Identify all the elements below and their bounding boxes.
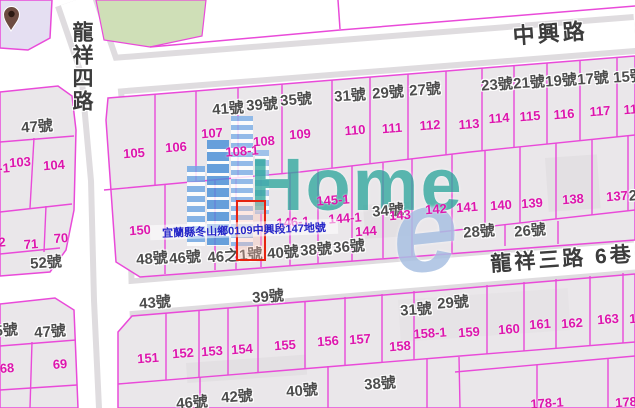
parcel-number-label: 138 (562, 192, 585, 206)
parcel-number-label: 112 (419, 118, 441, 132)
parcel-number-label: 104 (43, 158, 66, 172)
house-number-label: 43號 (139, 294, 172, 311)
parcel-number-label: 107 (201, 126, 224, 140)
watermark-e-swoosh: e (386, 169, 464, 293)
house-number-label: 38號 (300, 241, 333, 258)
parcel-number-label: 71 (23, 237, 38, 251)
parcel-number-label: 163 (597, 312, 620, 326)
road-label-longxiang-4: 龍祥四路 (66, 21, 96, 113)
house-number-label: 27號 (409, 81, 442, 98)
house-number-label: 39號 (246, 96, 279, 113)
parcel-number-label: 110 (344, 123, 366, 137)
parcel-number-label: 141 (456, 200, 479, 214)
parcel-number-label: 155 (274, 338, 297, 352)
house-number-label: 38號 (364, 375, 397, 392)
location-pin-icon[interactable] (0, 0, 24, 34)
parcel-number-label: 108 (253, 134, 276, 148)
house-number-label: 46號 (169, 249, 202, 266)
house-number-label: 46號 (176, 394, 209, 408)
house-number-label: 15號 (613, 68, 635, 85)
house-number-label: 31號 (334, 87, 367, 104)
house-number-label: 2 (628, 188, 635, 204)
parcel-number-label: 159 (458, 325, 481, 339)
parcel-number-label: 178-1 (530, 395, 564, 408)
house-number-label: 45號 (0, 322, 18, 339)
parcel-number-label: 113 (458, 117, 480, 131)
parcel-number-label: 68 (0, 361, 15, 375)
house-number-label: 21號 (513, 74, 546, 91)
parcel-number-label: 115 (519, 109, 541, 123)
house-number-label: 40號 (286, 382, 319, 399)
house-number-label: 36號 (333, 238, 366, 255)
house-number-label: 39號 (252, 288, 285, 305)
parcel-number-label: -1 (0, 161, 10, 175)
parcel-number-label: 160 (498, 322, 521, 336)
parcel-number-label: 137 (606, 189, 629, 203)
house-number-label: 47號 (34, 323, 67, 340)
parcel-number-label: 145-1 (316, 192, 350, 207)
parcel-number-label: 153 (201, 344, 224, 358)
house-number-label: 47號 (21, 118, 54, 135)
house-number-label: 19號 (545, 72, 578, 89)
map-canvas[interactable]: Home e 41號39號35號31號29號27號23號21號19號17號15號… (0, 0, 635, 408)
parcel-number-label: 161 (529, 317, 552, 331)
parcel-number-label: 139 (521, 196, 544, 210)
parcel-number-label: 70 (53, 231, 68, 245)
house-number-label: 17號 (577, 70, 610, 87)
parcel-number-label: 158-1 (413, 325, 447, 340)
parcel-number-label: 69 (52, 357, 67, 371)
parcel-number-label: 156 (317, 334, 340, 348)
house-number-label: 41號 (212, 100, 245, 117)
house-number-label: 48號 (136, 250, 169, 267)
house-number-label: 31號 (400, 301, 433, 318)
parcel-number-label: 178 (615, 395, 635, 408)
parcel-number-label: 118 (623, 102, 635, 116)
parcel-number-label: 152 (172, 346, 195, 360)
house-number-label: 23號 (481, 76, 514, 93)
house-number-label: 26號 (514, 222, 547, 239)
house-number-label: 29號 (372, 84, 405, 101)
parcel-number-label: 105 (123, 146, 146, 160)
parcel-number-label: 106 (165, 140, 188, 154)
parcel-number-label: 158 (389, 339, 412, 353)
house-number-label: 40號 (267, 244, 300, 261)
parcel-number-label: 140 (490, 198, 513, 212)
parcel-number-label: 154 (231, 342, 254, 356)
house-number-label: 35號 (280, 91, 313, 108)
road-label-zhongxing: 中興路 (511, 13, 588, 50)
house-number-label: 52號 (30, 254, 63, 271)
parcel-number-label: 150 (129, 223, 152, 237)
parcel-number-label: 117 (589, 104, 611, 118)
parcel-number-label: 151 (137, 351, 160, 365)
house-number-label: 28號 (463, 223, 496, 240)
parcel-number-label: 162 (561, 316, 584, 330)
parcel-number-label: 114 (488, 111, 510, 125)
parcel-number-label: 157 (349, 332, 372, 346)
parcel-number-label: 111 (381, 121, 402, 135)
parcel-number-label: 143 (389, 208, 412, 222)
city-block-bottom-left (0, 298, 78, 408)
parcel-number-label: 142 (425, 202, 448, 216)
parcel-number-label: 164 (629, 311, 635, 325)
house-number-label: 29號 (437, 294, 470, 311)
parcel-number-label: 103 (9, 155, 32, 169)
parcel-number-label: 144 (355, 224, 378, 238)
house-number-label: 42號 (221, 388, 254, 405)
parcel-number-label: 116 (553, 107, 575, 121)
parcel-number-label: 2 (0, 235, 6, 248)
parcel-number-label: 109 (289, 127, 312, 141)
